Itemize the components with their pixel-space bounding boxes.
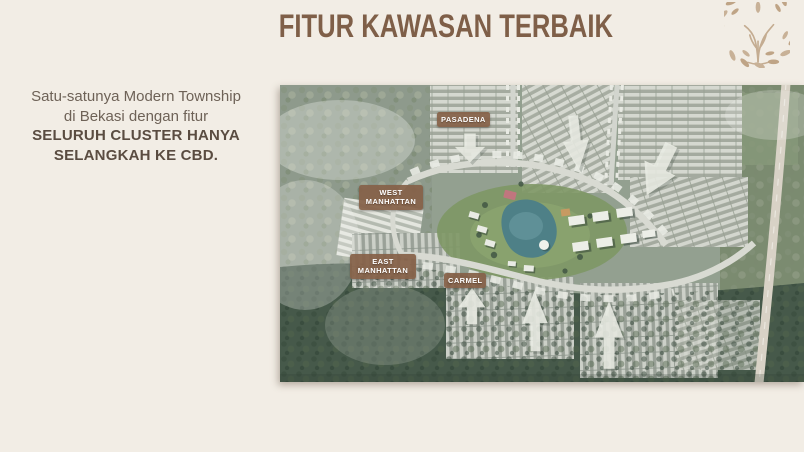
presentation-slide: FITUR KAWASAN TERBAIK xyxy=(0,0,804,452)
intro-highlight-2: SELANGKAH KE CBD. xyxy=(6,146,266,166)
map-label-west-manhattan: WEST MANHATTAN xyxy=(359,185,423,210)
intro-highlight-1: SELURUH CLUSTER HANYA xyxy=(6,126,266,146)
intro-text-block: Satu-satunya Modern Township di Bekasi d… xyxy=(6,87,266,165)
map-label-carmel: CARMEL xyxy=(444,273,486,288)
title-bar: FITUR KAWASAN TERBAIK xyxy=(88,6,804,46)
masterplan-aerial-map: PASADENA WEST MANHATTAN EAST MANHATTAN C… xyxy=(280,85,804,382)
brand-logo xyxy=(724,2,790,64)
map-label-east-manhattan: EAST MANHATTAN xyxy=(350,254,416,279)
intro-line-2: di Bekasi dengan fitur xyxy=(6,107,266,127)
tree-icon xyxy=(724,2,790,68)
intro-line-1: Satu-satunya Modern Township xyxy=(6,87,266,107)
map-label-pasadena: PASADENA xyxy=(437,112,490,127)
page-title: FITUR KAWASAN TERBAIK xyxy=(279,6,613,46)
aerial-map-art xyxy=(280,85,804,382)
